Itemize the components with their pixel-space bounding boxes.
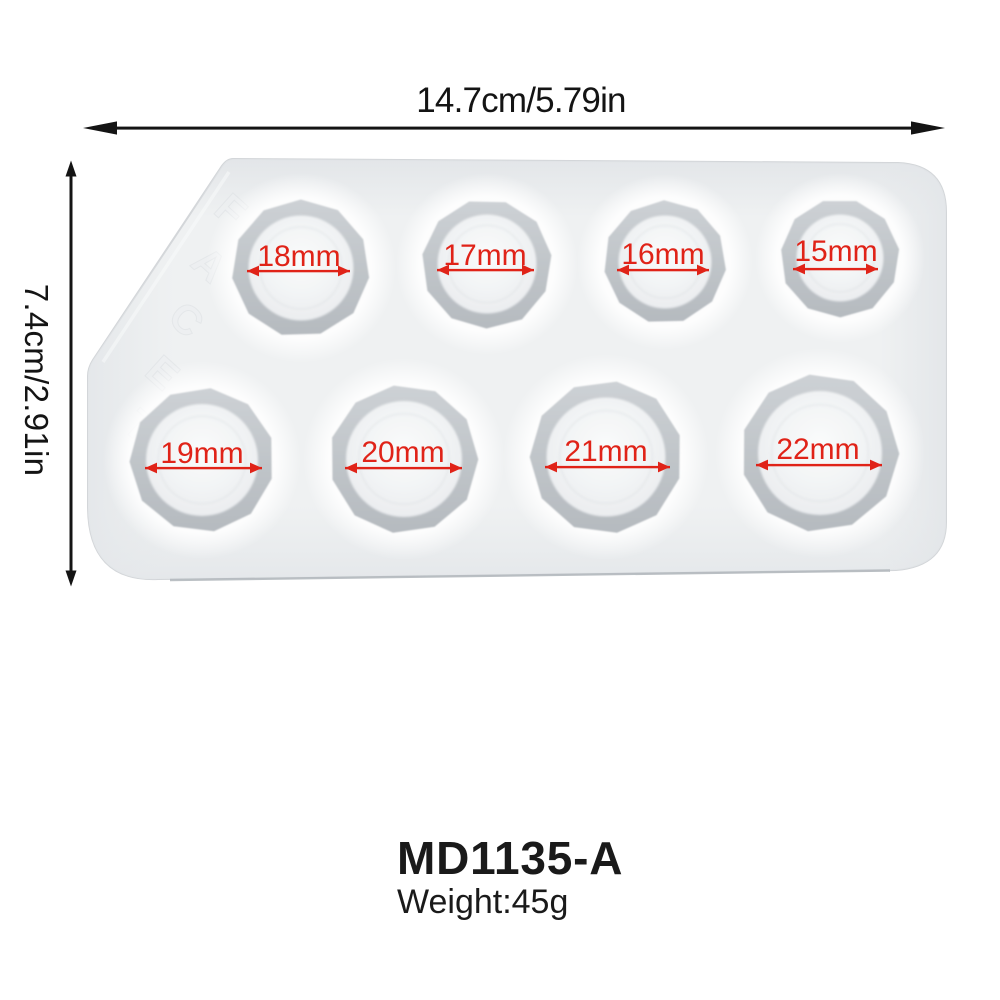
svg-text:17mm: 17mm <box>443 239 526 272</box>
svg-text:Weight:45g: Weight:45g <box>397 883 568 921</box>
svg-text:19mm: 19mm <box>160 437 243 470</box>
svg-text:7.4cm/2.91in: 7.4cm/2.91in <box>18 284 55 477</box>
svg-text:21mm: 21mm <box>564 435 647 468</box>
svg-text:15mm: 15mm <box>794 235 877 268</box>
svg-text:22mm: 22mm <box>776 433 859 466</box>
svg-text:14.7cm/5.79in: 14.7cm/5.79in <box>416 81 625 120</box>
svg-text:20mm: 20mm <box>361 436 444 469</box>
svg-text:16mm: 16mm <box>621 238 704 271</box>
svg-text:MD1135-A: MD1135-A <box>397 832 623 884</box>
svg-text:18mm: 18mm <box>257 240 340 273</box>
